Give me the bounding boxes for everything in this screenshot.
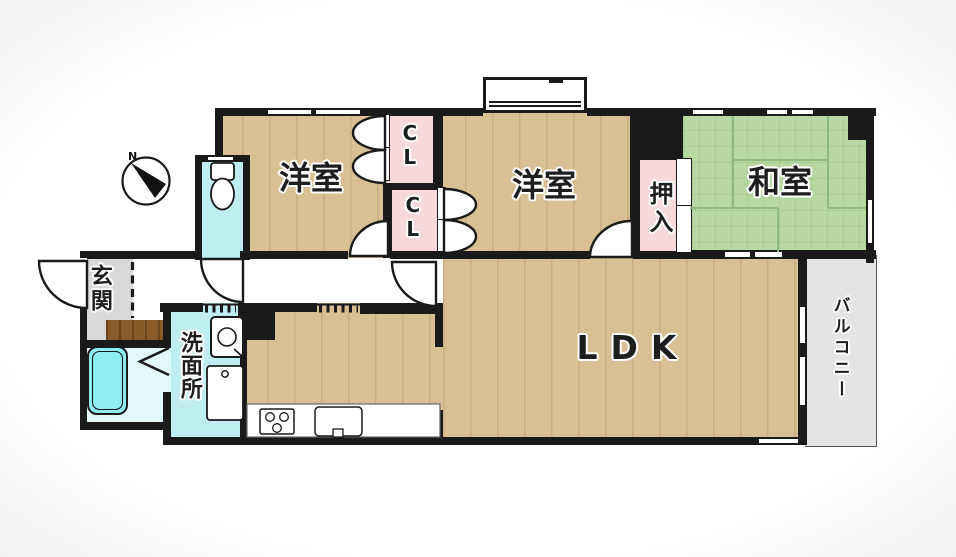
- closet-upper-door-arc: [353, 116, 385, 150]
- accordion-door: [203, 305, 360, 310]
- kitchen-counter: [247, 404, 440, 437]
- compass-north-label: N: [128, 151, 137, 162]
- closet-lower-label: CL: [402, 193, 423, 241]
- symbols-layer: [0, 0, 956, 557]
- bathtub: [88, 347, 127, 414]
- washing-machine: [211, 317, 243, 357]
- toilet-door-arc: [201, 259, 243, 302]
- stove: [260, 409, 294, 434]
- bedroom-west-door-arc: [350, 221, 388, 256]
- bathroom-bifold-door: [140, 348, 169, 375]
- wash-basin: [207, 366, 243, 420]
- hall-ldk-door-arc: [392, 262, 436, 306]
- japanese-room-label: 和室: [719, 166, 841, 199]
- bedroom-center-door-arc: [590, 221, 632, 257]
- entrance-label: 玄関: [87, 264, 110, 314]
- ldk-label: LDK: [558, 331, 708, 365]
- bedroom-center-label: 洋室: [483, 169, 605, 202]
- closet-upper-label: CL: [399, 121, 420, 169]
- washroom-label: 洗面所: [177, 331, 200, 400]
- closet-lower-door-arc: [444, 220, 476, 253]
- kitchen-sink: [315, 407, 362, 437]
- compass-icon: [123, 158, 170, 205]
- closet-lower-door-arc: [444, 189, 476, 220]
- oshiire-label: 押入: [646, 181, 671, 237]
- bedroom-west-label: 洋室: [250, 162, 372, 195]
- toilet-fixture: [211, 163, 234, 210]
- balcony-label: バルコニー: [830, 296, 848, 401]
- entrance-door-arc: [39, 261, 87, 308]
- floor-plan: 洋室 洋室 和室 LDK 押入 CL CL 玄関 洗面所 バルコニー N: [0, 0, 956, 557]
